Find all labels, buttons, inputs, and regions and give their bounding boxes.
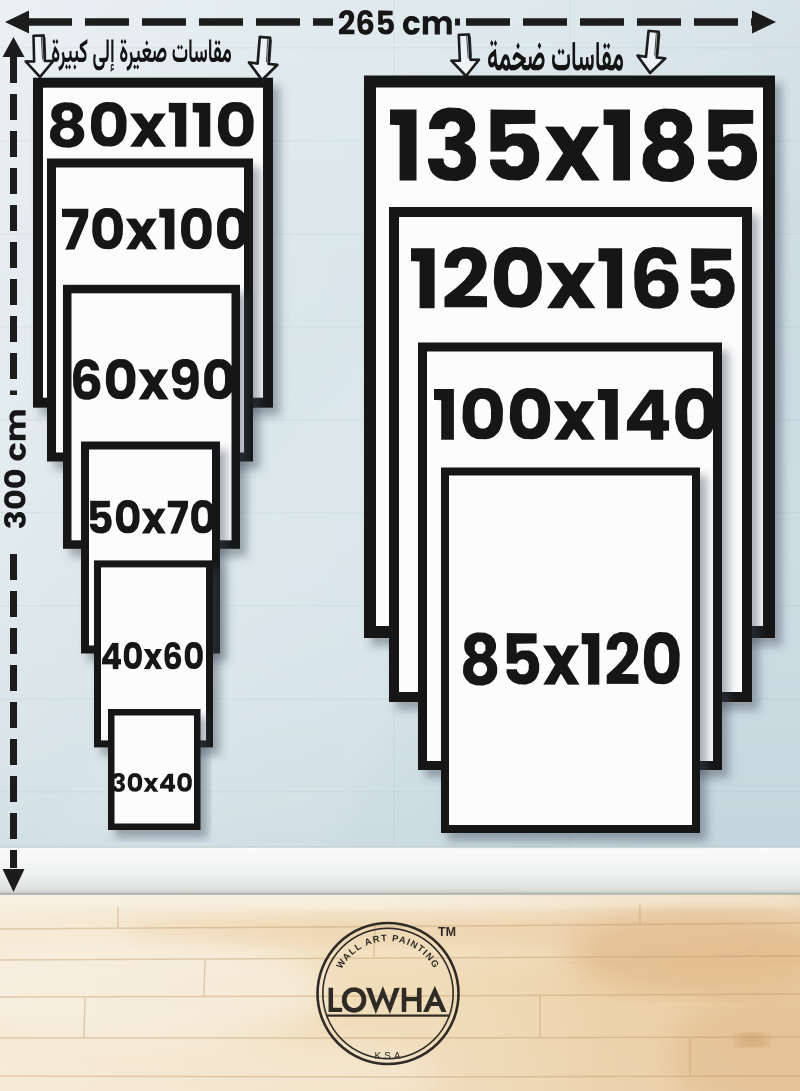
- svg-text:KSA: KSA: [374, 1051, 403, 1062]
- svg-text:TM: TM: [438, 925, 456, 939]
